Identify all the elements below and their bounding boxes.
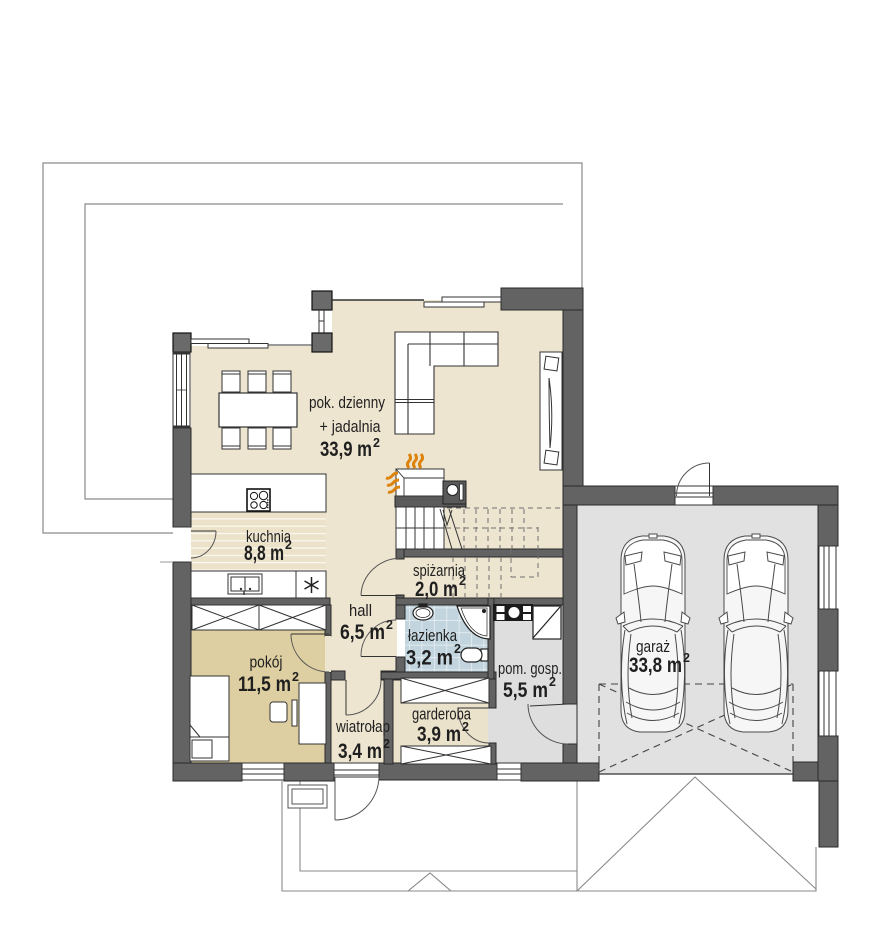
svg-text:hall: hall (349, 601, 372, 620)
svg-text:2: 2 (454, 642, 461, 656)
svg-text:33,9 m: 33,9 m (320, 437, 372, 461)
svg-text:2: 2 (383, 737, 390, 751)
svg-text:wiatrołap: wiatrołap (335, 717, 390, 736)
svg-text:pokój: pokój (250, 653, 283, 672)
svg-text:3,9 m: 3,9 m (417, 722, 461, 746)
svg-text:2: 2 (285, 538, 292, 552)
svg-text:6,5 m: 6,5 m (340, 620, 385, 644)
svg-text:2: 2 (292, 670, 299, 684)
svg-text:2: 2 (462, 720, 469, 734)
svg-text:pok. dzienny: pok. dzienny (309, 393, 385, 412)
svg-text:8,8 m: 8,8 m (244, 541, 284, 565)
svg-text:11,5 m: 11,5 m (238, 672, 291, 696)
svg-text:2: 2 (459, 574, 466, 588)
svg-text:5,5 m: 5,5 m (503, 678, 548, 702)
svg-text:3,4 m: 3,4 m (338, 739, 382, 763)
svg-text:+ jadalnia: + jadalnia (320, 417, 381, 436)
svg-text:2: 2 (373, 436, 380, 450)
svg-text:3,2 m: 3,2 m (406, 646, 453, 670)
svg-text:2: 2 (386, 618, 393, 632)
svg-text:2,0 m: 2,0 m (415, 577, 458, 601)
svg-text:2: 2 (683, 651, 690, 665)
svg-text:33,8 m: 33,8 m (629, 653, 682, 677)
svg-text:2: 2 (549, 675, 556, 689)
svg-text:łazienka: łazienka (408, 626, 457, 645)
